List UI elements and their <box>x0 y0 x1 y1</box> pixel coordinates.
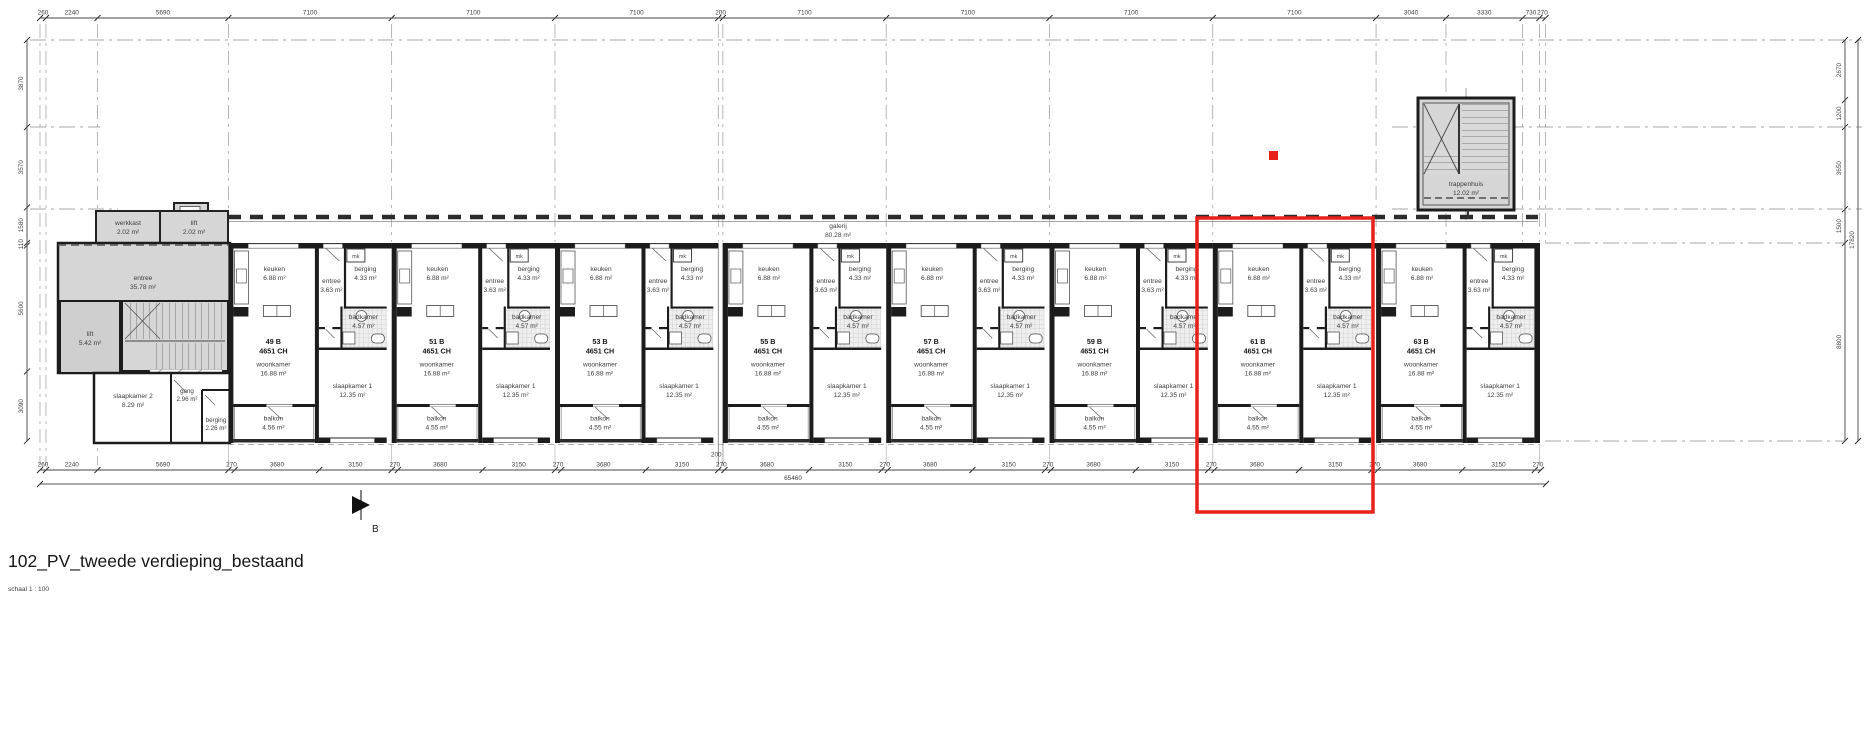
room-keuken-label: keuken <box>590 266 612 273</box>
meterkast-label: mk <box>1173 254 1180 260</box>
berging-common-label: berging <box>206 417 227 424</box>
toilet-icon <box>1356 334 1369 343</box>
dim-label: 3680 <box>923 462 938 469</box>
room-woonkamer-area: 16.88 m² <box>424 371 451 378</box>
slaapkamer-window <box>494 439 538 443</box>
room-woonkamer-area: 16.88 m² <box>1081 371 1108 378</box>
unit-postcode-label: 4651 CH <box>586 347 614 356</box>
dim-label: 270 <box>1533 462 1544 469</box>
room-keuken-label: keuken <box>1085 266 1107 273</box>
toilet-icon <box>866 334 879 343</box>
slaapkamer-window <box>825 439 869 443</box>
room-entree-label: entree <box>485 278 504 285</box>
front-door <box>818 244 837 248</box>
room-woonkamer-area: 16.88 m² <box>1245 371 1272 378</box>
section-marker: B <box>352 490 379 535</box>
dim-label: 3150 <box>1002 462 1017 469</box>
meterkast-label: mk <box>516 254 523 260</box>
room-woonkamer-label: woonkamer <box>582 362 618 369</box>
toilet-icon <box>535 334 548 343</box>
dim-label: 7100 <box>961 10 976 17</box>
unit-number-label: 53 B <box>592 337 607 346</box>
meterkast-label: mk <box>1010 254 1017 260</box>
keuken-window <box>575 244 625 248</box>
apartment-unit-51b: mk keuken 6.88 m² <box>392 243 555 443</box>
room-slaapkamer-label: slaapkamer 1 <box>496 383 536 390</box>
washer-icon <box>670 332 682 344</box>
room-entree-label: entree <box>649 278 668 285</box>
room-keuken-area: 6.88 m² <box>1248 275 1271 282</box>
dim-label: 3650 <box>1836 161 1843 176</box>
room-balkon-area: 4.55 m² <box>1083 425 1106 432</box>
meterkast-label: mk <box>352 254 359 260</box>
apartment-unit-63b: mk keuken 6.88 m² <box>1376 243 1539 443</box>
room-keuken-area: 6.88 m² <box>590 275 613 282</box>
room-berging-label: berging <box>354 266 376 273</box>
dim-label: 270 <box>226 462 237 469</box>
room-slaapkamer-area: 12.35 m² <box>1160 392 1187 399</box>
dim-label: 3680 <box>1086 462 1101 469</box>
room-slaapkamer-area: 12.35 m² <box>339 392 366 399</box>
dim-label: 270 <box>716 462 727 469</box>
annex-rooms: slaapkamer 2 8.29 m² gang 2.96 m² bergin… <box>94 373 230 443</box>
dimension-column-right: 2670120036501500880017820 <box>1836 37 1861 444</box>
balkon-door <box>1414 405 1440 407</box>
entree-hal-area: 35.78 m² <box>130 284 157 291</box>
room-woonkamer-area: 16.88 m² <box>918 371 945 378</box>
room-slaapkamer-label: slaapkamer 1 <box>333 383 373 390</box>
room-slaapkamer-label: slaapkamer 1 <box>659 383 699 390</box>
drawing-sheet: galerij 80.28 m² werkkast 2.02 m² lift 2… <box>0 0 1868 737</box>
balkon-railing <box>728 439 810 443</box>
room-entree-area: 3.63 m² <box>1141 287 1164 294</box>
dim-label: 5600 <box>18 301 25 316</box>
balkon-door <box>266 405 292 407</box>
unit-postcode-label: 4651 CH <box>754 347 782 356</box>
dim-label: 260 <box>38 462 49 469</box>
room-badkamer-label: badkamer <box>843 314 873 321</box>
werkkast-area: 2.02 m² <box>117 229 140 236</box>
slaapkamer-window <box>657 439 701 443</box>
room-slaapkamer-label: slaapkamer 1 <box>827 383 867 390</box>
washer-icon <box>1491 332 1503 344</box>
room-balkon-label: balkon <box>921 416 941 423</box>
room-woonkamer-label: woonkamer <box>1403 362 1439 369</box>
dimension-row-top: 2602240569071007100710020071007100710071… <box>37 10 1549 22</box>
common-entrance-block: werkkast 2.02 m² lift 2.02 m² entree 35.… <box>58 203 230 443</box>
dim-label: 1500 <box>1836 219 1843 234</box>
dim-label: 200 <box>715 10 726 17</box>
unit-number-label: 49 B <box>266 337 281 346</box>
dim-label: 110 <box>18 239 25 250</box>
meterkast-label: mk <box>679 254 686 260</box>
unit-number-label: 63 B <box>1414 337 1429 346</box>
toilet-icon <box>1029 334 1042 343</box>
meterkast-label: mk <box>847 254 854 260</box>
toilet-icon <box>1519 334 1532 343</box>
dim-label: 7100 <box>797 10 812 17</box>
dim-label: 7100 <box>1287 10 1302 17</box>
room-keuken-area: 6.88 m² <box>921 275 944 282</box>
dim-label: 270 <box>389 462 400 469</box>
room-berging-area: 4.33 m² <box>1175 275 1198 282</box>
trappenhuis-label: trappenhuis <box>1449 181 1484 188</box>
dim-label: 3150 <box>838 462 853 469</box>
unit-number-label: 51 B <box>429 337 444 346</box>
room-keuken-area: 6.88 m² <box>1084 275 1107 282</box>
apartment-units: mk keuken ent <box>228 243 1539 443</box>
room-woonkamer-label: woonkamer <box>1240 362 1276 369</box>
dim-label: 270 <box>879 462 890 469</box>
room-woonkamer-area: 16.88 m² <box>260 371 287 378</box>
gang-label: gang <box>180 388 194 395</box>
dim-label: 7100 <box>630 10 645 17</box>
dim-label: 2240 <box>65 462 80 469</box>
galerij-area: 80.28 m² <box>825 232 852 239</box>
dim-label: 3680 <box>270 462 285 469</box>
slaapkamer-window <box>1478 439 1522 443</box>
trappenhuis-block: trappenhuis 12.02 m² <box>1418 98 1514 219</box>
room-badkamer-label: badkamer <box>1333 314 1363 321</box>
balkon-door <box>924 405 950 407</box>
room-slaapkamer-label: slaapkamer 1 <box>1480 383 1520 390</box>
unit-postcode-label: 4651 CH <box>1407 347 1435 356</box>
washer-icon <box>1001 332 1013 344</box>
front-door <box>1145 244 1164 248</box>
balkon-door <box>1251 405 1277 407</box>
room-berging-area: 4.33 m² <box>1012 275 1035 282</box>
room-keuken-area: 6.88 m² <box>1411 275 1434 282</box>
room-badkamer-label: badkamer <box>1496 314 1526 321</box>
washer-icon <box>506 332 518 344</box>
dim-label: 260 <box>38 10 49 17</box>
keuken-window <box>248 244 298 248</box>
room-slaapkamer-area: 12.35 m² <box>834 392 861 399</box>
room-balkon-area: 4.55 m² <box>1247 425 1270 432</box>
lift-large-label: lift <box>87 331 94 338</box>
room-entree-label: entree <box>1470 278 1489 285</box>
dim-label: 7100 <box>466 10 481 17</box>
dim-label: 5690 <box>156 10 171 17</box>
horizontal-centerlines <box>30 40 1862 441</box>
apartment-unit-55b: mk keuken 6.88 m² <box>723 243 886 443</box>
dim-label: 7100 <box>1124 10 1139 17</box>
room-entree-label: entree <box>322 278 341 285</box>
balkon-railing <box>233 439 315 443</box>
apartment-unit-53b: mk keuken 6.88 m² <box>555 243 718 443</box>
room-slaapkamer-area: 12.35 m² <box>1487 392 1514 399</box>
keuken-window <box>412 244 462 248</box>
room-badkamer-area: 4.57 m² <box>847 323 870 330</box>
room-entree-area: 3.63 m² <box>647 287 670 294</box>
lift-small-label: lift <box>191 220 198 227</box>
room-keuken-area: 6.88 m² <box>427 275 450 282</box>
balkon-railing <box>1381 439 1463 443</box>
floorplan-svg: galerij 80.28 m² werkkast 2.02 m² lift 2… <box>0 0 1868 737</box>
room-woonkamer-label: woonkamer <box>913 362 949 369</box>
room-woonkamer-area: 16.88 m² <box>587 371 614 378</box>
unit-postcode-label: 4651 CH <box>259 347 287 356</box>
room-entree-label: entree <box>980 278 999 285</box>
dim-label: 270 <box>1537 10 1548 17</box>
room-keuken-label: keuken <box>922 266 944 273</box>
front-door <box>981 244 1000 248</box>
dim-label: 5690 <box>156 462 171 469</box>
room-entree-area: 3.63 m² <box>320 287 343 294</box>
dim-label: 3040 <box>1404 10 1419 17</box>
toilet-icon <box>1193 334 1206 343</box>
room-balkon-area: 4.55 m² <box>426 425 449 432</box>
room-berging-area: 4.33 m² <box>849 275 872 282</box>
room-badkamer-area: 4.57 m² <box>1337 323 1360 330</box>
apartment-unit-49b: mk keuken 6.88 m² <box>228 243 391 443</box>
slaapkamer2-area: 8.29 m² <box>122 402 145 409</box>
dim-label: 2240 <box>65 10 80 17</box>
room-woonkamer-label: woonkamer <box>750 362 786 369</box>
room-berging-area: 4.33 m² <box>518 275 541 282</box>
dim-label: 8800 <box>1836 334 1843 349</box>
room-entree-area: 3.63 m² <box>815 287 838 294</box>
dim-label: 270 <box>1043 462 1054 469</box>
room-balkon-label: balkon <box>1085 416 1105 423</box>
meterkast-label: mk <box>1500 254 1507 260</box>
room-berging-label: berging <box>1339 266 1361 273</box>
room-badkamer-area: 4.57 m² <box>1010 323 1033 330</box>
room-balkon-area: 4.55 m² <box>589 425 612 432</box>
unit-number-label: 57 B <box>924 337 939 346</box>
unit-postcode-label: 4651 CH <box>1244 347 1272 356</box>
trappenhuis-area: 12.02 m² <box>1453 190 1480 197</box>
room-badkamer-label: badkamer <box>512 314 542 321</box>
room-berging-label: berging <box>681 266 703 273</box>
dim-label: 3680 <box>596 462 611 469</box>
unit-number-label: 55 B <box>760 337 775 346</box>
lift-small-area: 2.02 m² <box>183 229 206 236</box>
dim-label: 270 <box>1206 462 1217 469</box>
room-woonkamer-label: woonkamer <box>419 362 455 369</box>
drawing-title: 102_PV_tweede verdieping_bestaand <box>8 551 304 572</box>
galerij-label: galerij <box>829 223 847 230</box>
apartment-unit-61b: mk keuken 6.88 m² <box>1213 243 1376 443</box>
meterkast-label: mk <box>1337 254 1344 260</box>
room-berging-area: 4.33 m² <box>681 275 704 282</box>
unit-postcode-label: 4651 CH <box>917 347 945 356</box>
room-balkon-area: 4.55 m² <box>757 425 780 432</box>
room-balkon-label: balkon <box>1248 416 1268 423</box>
room-balkon-label: balkon <box>264 416 284 423</box>
room-slaapkamer-label: slaapkamer 1 <box>1317 383 1357 390</box>
room-berging-area: 4.33 m² <box>1339 275 1362 282</box>
room-entree-label: entree <box>1143 278 1162 285</box>
unit-postcode-label: 4651 CH <box>423 347 451 356</box>
room-slaapkamer-label: slaapkamer 1 <box>990 383 1030 390</box>
dim-label: 3090 <box>18 399 25 414</box>
dim-label: 2670 <box>1836 62 1843 77</box>
room-badkamer-area: 4.57 m² <box>1500 323 1523 330</box>
balkon-door <box>761 405 787 407</box>
dim-label: 3150 <box>348 462 363 469</box>
gang-area: 2.96 m² <box>177 396 198 403</box>
dim-label: 1200 <box>1836 106 1843 121</box>
keuken-window <box>743 244 793 248</box>
room-balkon-label: balkon <box>1411 416 1431 423</box>
room-badkamer-area: 4.57 m² <box>679 323 702 330</box>
dimension-row-bottom: 2602240569027036803150270368031502703680… <box>37 452 1549 488</box>
balkon-railing <box>1218 439 1300 443</box>
room-woonkamer-area: 16.88 m² <box>755 371 782 378</box>
dim-label: 17820 <box>1849 231 1856 249</box>
slaapkamer2-label: slaapkamer 2 <box>113 393 153 400</box>
room-woonkamer-label: woonkamer <box>1076 362 1112 369</box>
slaapkamer-window <box>988 439 1032 443</box>
keuken-window <box>906 244 956 248</box>
dim-label: 3680 <box>1413 462 1428 469</box>
room-balkon-label: balkon <box>758 416 778 423</box>
room-berging-label: berging <box>1012 266 1034 273</box>
room-keuken-label: keuken <box>1411 266 1433 273</box>
end-wall <box>1534 243 1540 443</box>
lift-large-area: 5.42 m² <box>79 340 102 347</box>
room-entree-area: 3.63 m² <box>484 287 507 294</box>
dim-label: 3150 <box>512 462 527 469</box>
werkkast-label: werkkast <box>114 220 141 227</box>
room-keuken-label: keuken <box>427 266 449 273</box>
room-badkamer-area: 4.57 m² <box>1173 323 1196 330</box>
room-balkon-area: 4.56 m² <box>262 425 285 432</box>
keuken-window <box>1070 244 1120 248</box>
dim-label: 3680 <box>1250 462 1265 469</box>
room-entree-area: 3.63 m² <box>1305 287 1328 294</box>
dimension-column-left: 38703570158011056003090 <box>18 37 30 444</box>
washer-icon <box>837 332 849 344</box>
room-keuken-area: 6.88 m² <box>758 275 781 282</box>
galerij-band: galerij 80.28 m² <box>228 217 1538 239</box>
room-berging-label: berging <box>1176 266 1198 273</box>
room-woonkamer-area: 16.88 m² <box>1408 371 1435 378</box>
room-badkamer-label: badkamer <box>675 314 705 321</box>
apartment-unit-59b: mk keuken 6.88 m² <box>1050 243 1213 443</box>
keuken-window <box>1233 244 1283 248</box>
room-balkon-label: balkon <box>427 416 447 423</box>
drawing-scale: schaal 1 : 100 <box>8 586 49 593</box>
keuken-window <box>1396 244 1446 248</box>
room-badkamer-area: 4.57 m² <box>352 323 375 330</box>
section-label: B <box>372 524 379 535</box>
room-woonkamer-label: woonkamer <box>255 362 291 369</box>
room-balkon-area: 4.55 m² <box>920 425 943 432</box>
room-berging-label: berging <box>518 266 540 273</box>
room-badkamer-label: badkamer <box>1007 314 1037 321</box>
dim-label: 730 <box>1526 10 1537 17</box>
dim-label: 1580 <box>18 218 25 233</box>
front-door <box>1308 244 1327 248</box>
front-door <box>650 244 669 248</box>
slaapkamer-window <box>330 439 374 443</box>
room-slaapkamer-area: 12.35 m² <box>503 392 530 399</box>
room-balkon-area: 4.55 m² <box>1410 425 1433 432</box>
dim-label: 7100 <box>303 10 318 17</box>
room-slaapkamer-area: 12.35 m² <box>997 392 1024 399</box>
room-berging-label: berging <box>849 266 871 273</box>
dim-label: 270 <box>553 462 564 469</box>
room-balkon-label: balkon <box>590 416 610 423</box>
title-block: 102_PV_tweede verdieping_bestaand schaal… <box>8 551 304 593</box>
balkon-railing <box>1055 439 1137 443</box>
balkon-door <box>1088 405 1114 407</box>
room-keuken-label: keuken <box>264 266 286 273</box>
front-door <box>487 244 506 248</box>
balkon-railing <box>397 439 479 443</box>
room-entree-area: 3.63 m² <box>1468 287 1491 294</box>
dim-label: 3680 <box>760 462 775 469</box>
dim-label: 3680 <box>433 462 448 469</box>
entree-hal-label: entree <box>134 275 153 282</box>
balkon-railing <box>891 439 973 443</box>
unit-number-label: 61 B <box>1250 337 1265 346</box>
balkon-door <box>430 405 456 407</box>
unit-postcode-label: 4651 CH <box>1080 347 1108 356</box>
dim-label: 200 <box>711 452 722 459</box>
toilet-icon <box>698 334 711 343</box>
dim-label: 65460 <box>784 475 802 482</box>
room-slaapkamer-area: 12.35 m² <box>1324 392 1351 399</box>
balkon-door <box>593 405 619 407</box>
main-staircase <box>122 301 228 374</box>
slaapkamer-window <box>1152 439 1196 443</box>
front-door <box>1471 244 1490 248</box>
apartment-unit-57b: mk keuken 6.88 m² <box>886 243 1049 443</box>
room-berging-area: 4.33 m² <box>354 275 377 282</box>
dim-label: 3150 <box>1491 462 1506 469</box>
toilet-icon <box>371 334 384 343</box>
slaapkamer-window <box>1315 439 1359 443</box>
washer-icon <box>1327 332 1339 344</box>
dim-label: 3150 <box>1328 462 1343 469</box>
room-badkamer-label: badkamer <box>349 314 379 321</box>
front-door <box>323 244 342 248</box>
room-entree-label: entree <box>817 278 836 285</box>
unit-number-label: 59 B <box>1087 337 1102 346</box>
room-entree-area: 3.63 m² <box>978 287 1001 294</box>
dim-label: 3330 <box>1477 10 1492 17</box>
washer-icon <box>343 332 355 344</box>
room-slaapkamer-label: slaapkamer 1 <box>1154 383 1194 390</box>
washer-icon <box>1164 332 1176 344</box>
room-berging-label: berging <box>1502 266 1524 273</box>
dim-label: 3150 <box>1165 462 1180 469</box>
berging-common-area: 2.26 m² <box>206 425 227 432</box>
room-entree-label: entree <box>1306 278 1325 285</box>
room-keuken-label: keuken <box>1248 266 1270 273</box>
room-slaapkamer-area: 12.35 m² <box>666 392 693 399</box>
room-berging-area: 4.33 m² <box>1502 275 1525 282</box>
room-keuken-label: keuken <box>758 266 780 273</box>
red-square-marker <box>1269 151 1278 160</box>
room-badkamer-area: 4.57 m² <box>516 323 539 330</box>
dim-label: 270 <box>1369 462 1380 469</box>
dim-label: 3870 <box>18 76 25 91</box>
balkon-railing <box>560 439 642 443</box>
room-keuken-area: 6.88 m² <box>263 275 286 282</box>
dim-label: 3570 <box>18 160 25 175</box>
dim-label: 3150 <box>675 462 690 469</box>
